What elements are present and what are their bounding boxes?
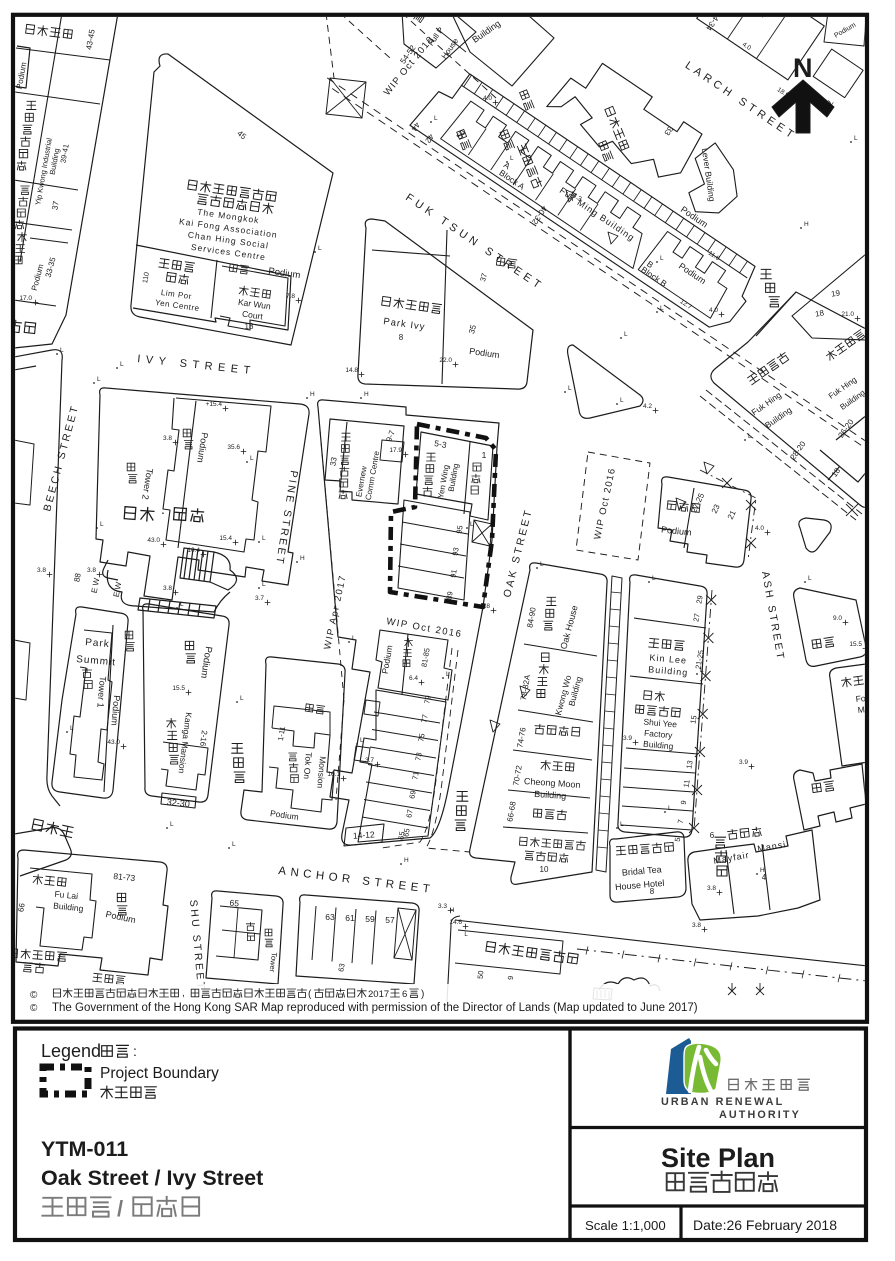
svg-text:L: L bbox=[748, 433, 752, 440]
svg-text:L: L bbox=[470, 521, 474, 528]
svg-text:L: L bbox=[170, 821, 174, 828]
svg-text:H: H bbox=[404, 857, 409, 864]
svg-text:22.0: 22.0 bbox=[439, 357, 452, 364]
svg-text:4: 4 bbox=[762, 873, 767, 882]
svg-text:6.4: 6.4 bbox=[409, 675, 418, 682]
svg-text:L: L bbox=[808, 575, 812, 582]
svg-text:4.0: 4.0 bbox=[709, 307, 718, 314]
svg-text:L: L bbox=[620, 397, 624, 404]
svg-text:L: L bbox=[70, 725, 74, 732]
svg-text:,: , bbox=[182, 988, 185, 999]
svg-text:63: 63 bbox=[336, 963, 346, 973]
svg-text:10: 10 bbox=[540, 865, 549, 874]
svg-text:4.2: 4.2 bbox=[643, 403, 652, 410]
svg-text:L: L bbox=[360, 737, 364, 744]
svg-text:L: L bbox=[120, 361, 124, 368]
svg-text:29: 29 bbox=[694, 595, 704, 605]
svg-text:4.0: 4.0 bbox=[755, 525, 764, 532]
svg-text:Legend: Legend bbox=[41, 1041, 101, 1061]
svg-text:3.8: 3.8 bbox=[163, 435, 172, 442]
svg-text:91: 91 bbox=[448, 569, 458, 579]
svg-text:75: 75 bbox=[416, 733, 426, 743]
svg-text:Scale 1:1,000: Scale 1:1,000 bbox=[585, 1218, 666, 1233]
svg-text:H: H bbox=[300, 555, 305, 562]
svg-text:35.6: 35.6 bbox=[227, 444, 240, 451]
svg-text:63: 63 bbox=[325, 912, 335, 922]
svg-text:17.9: 17.9 bbox=[389, 447, 402, 454]
svg-text:3.8: 3.8 bbox=[163, 585, 172, 592]
svg-text:L: L bbox=[668, 805, 672, 812]
svg-text:URBAN RENEWAL: URBAN RENEWAL bbox=[661, 1096, 784, 1108]
svg-text:43.0: 43.0 bbox=[107, 739, 120, 746]
svg-text:2017: 2017 bbox=[368, 989, 389, 1000]
svg-text:14-12: 14-12 bbox=[353, 829, 376, 841]
svg-text:L: L bbox=[660, 305, 664, 312]
svg-text:N: N bbox=[793, 53, 813, 83]
svg-text:L: L bbox=[60, 347, 64, 354]
svg-text:4.0: 4.0 bbox=[483, 95, 492, 102]
svg-text:H: H bbox=[364, 391, 369, 398]
svg-text:65: 65 bbox=[396, 831, 406, 841]
svg-text:18: 18 bbox=[245, 322, 254, 331]
svg-text:Project Boundary: Project Boundary bbox=[100, 1065, 219, 1082]
svg-text:L: L bbox=[180, 601, 184, 608]
svg-text:L: L bbox=[700, 667, 704, 674]
svg-text:Oak Street / Ivy Street: Oak Street / Ivy Street bbox=[41, 1166, 263, 1190]
svg-text:9: 9 bbox=[506, 975, 515, 980]
svg-text:/: / bbox=[117, 1196, 123, 1221]
svg-text:L: L bbox=[624, 331, 628, 338]
svg-text:©: © bbox=[30, 1003, 38, 1014]
svg-text:L: L bbox=[620, 821, 624, 828]
svg-text:3.9: 3.9 bbox=[739, 759, 748, 766]
svg-text:L: L bbox=[652, 575, 656, 582]
svg-text:·: · bbox=[161, 504, 166, 520]
svg-text:79: 79 bbox=[422, 695, 432, 705]
svg-text:15: 15 bbox=[688, 715, 698, 725]
svg-text:27: 27 bbox=[691, 613, 701, 623]
svg-text:43.0: 43.0 bbox=[147, 537, 160, 544]
svg-text:L: L bbox=[250, 455, 254, 462]
svg-text:H: H bbox=[804, 221, 809, 228]
svg-text:8: 8 bbox=[650, 887, 655, 896]
svg-text:1: 1 bbox=[482, 450, 487, 460]
svg-text:15.4: 15.4 bbox=[219, 535, 232, 542]
svg-text:L: L bbox=[352, 635, 356, 642]
svg-text:3.7: 3.7 bbox=[255, 595, 264, 602]
svg-text:H: H bbox=[310, 391, 315, 398]
svg-text:3.8: 3.8 bbox=[692, 922, 701, 929]
svg-text:+15.4: +15.4 bbox=[206, 401, 223, 408]
svg-text:16.1: 16.1 bbox=[327, 771, 340, 778]
svg-text:3.3: 3.3 bbox=[438, 903, 447, 910]
svg-text:21.0: 21.0 bbox=[841, 311, 854, 318]
svg-text:L: L bbox=[262, 581, 266, 588]
svg-text:3.8: 3.8 bbox=[481, 603, 490, 610]
svg-text:AUTHORITY: AUTHORITY bbox=[719, 1109, 801, 1121]
svg-text::: : bbox=[133, 1043, 137, 1059]
svg-text:L: L bbox=[240, 695, 244, 702]
svg-text:93: 93 bbox=[450, 547, 460, 557]
svg-text:57: 57 bbox=[385, 915, 395, 925]
svg-text:71: 71 bbox=[410, 771, 420, 781]
svg-text:8: 8 bbox=[399, 333, 404, 342]
svg-text:9.0: 9.0 bbox=[833, 615, 842, 622]
svg-text:11: 11 bbox=[681, 779, 691, 788]
svg-text:6: 6 bbox=[402, 989, 407, 1000]
svg-text:L: L bbox=[232, 841, 236, 848]
svg-text:L: L bbox=[540, 561, 544, 568]
svg-text:): ) bbox=[421, 989, 424, 1000]
svg-text:L: L bbox=[100, 521, 104, 528]
svg-text:The Government of the Hong Kon: The Government of the Hong Kong SAR Map … bbox=[52, 1002, 698, 1014]
svg-text:95: 95 bbox=[454, 525, 464, 535]
svg-text:7.8: 7.8 bbox=[286, 293, 295, 300]
svg-text:3.8: 3.8 bbox=[707, 885, 716, 892]
svg-text:L: L bbox=[510, 155, 514, 162]
svg-text:Park: Park bbox=[85, 637, 110, 650]
svg-text:14.8: 14.8 bbox=[345, 367, 358, 374]
svg-text:69: 69 bbox=[407, 790, 417, 800]
svg-text:3.9: 3.9 bbox=[623, 735, 632, 742]
svg-text:L: L bbox=[660, 255, 664, 262]
svg-text:50: 50 bbox=[476, 970, 486, 979]
svg-text:67: 67 bbox=[404, 809, 414, 819]
svg-text:3.8: 3.8 bbox=[87, 567, 96, 574]
svg-text:Site Plan: Site Plan bbox=[661, 1143, 775, 1173]
svg-text:14.6: 14.6 bbox=[449, 919, 462, 926]
svg-text:L: L bbox=[446, 671, 450, 678]
svg-text:Date:26 February 2018: Date:26 February 2018 bbox=[693, 1217, 837, 1233]
svg-text:15.5: 15.5 bbox=[172, 685, 185, 692]
svg-text:17.0: 17.0 bbox=[19, 295, 32, 302]
svg-text:3.8: 3.8 bbox=[37, 567, 46, 574]
svg-text:61: 61 bbox=[345, 913, 355, 923]
svg-text:59: 59 bbox=[365, 914, 375, 924]
svg-text:L: L bbox=[318, 245, 322, 252]
svg-text:15.5: 15.5 bbox=[849, 641, 862, 648]
svg-text:77: 77 bbox=[419, 714, 429, 724]
svg-text:L: L bbox=[262, 535, 266, 542]
svg-text:L: L bbox=[568, 385, 572, 392]
svg-text:13: 13 bbox=[684, 760, 694, 770]
svg-text:3.7: 3.7 bbox=[365, 757, 374, 764]
svg-text:H: H bbox=[760, 867, 765, 874]
svg-text:YTM-011: YTM-011 bbox=[41, 1137, 128, 1161]
svg-text:L: L bbox=[434, 115, 438, 122]
svg-text:65: 65 bbox=[229, 898, 240, 909]
svg-text:L: L bbox=[854, 135, 858, 142]
svg-text:©: © bbox=[30, 990, 38, 1001]
svg-text:6: 6 bbox=[710, 831, 715, 840]
svg-text:73: 73 bbox=[413, 752, 423, 762]
svg-text:L: L bbox=[97, 376, 101, 383]
